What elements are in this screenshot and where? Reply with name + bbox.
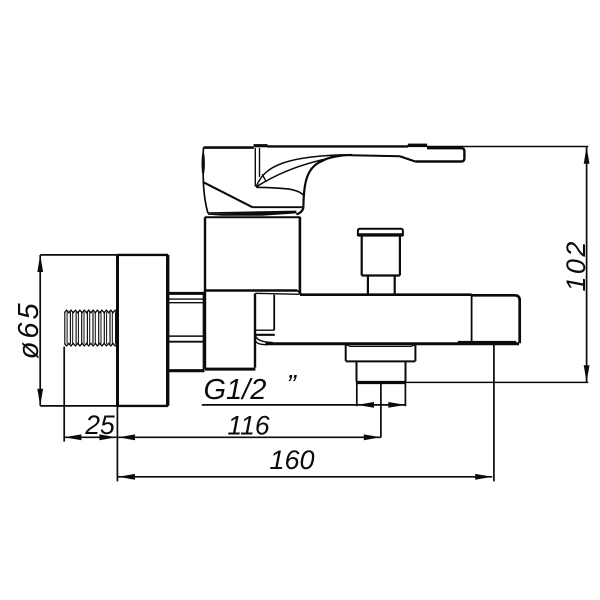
svg-text:160: 160 (269, 445, 314, 475)
svg-text:102: 102 (561, 239, 591, 292)
svg-text:25: 25 (84, 410, 115, 440)
svg-text:116: 116 (227, 410, 270, 440)
svg-text:ø65: ø65 (13, 300, 45, 359)
svg-text:G1/2: G1/2 (204, 374, 267, 406)
